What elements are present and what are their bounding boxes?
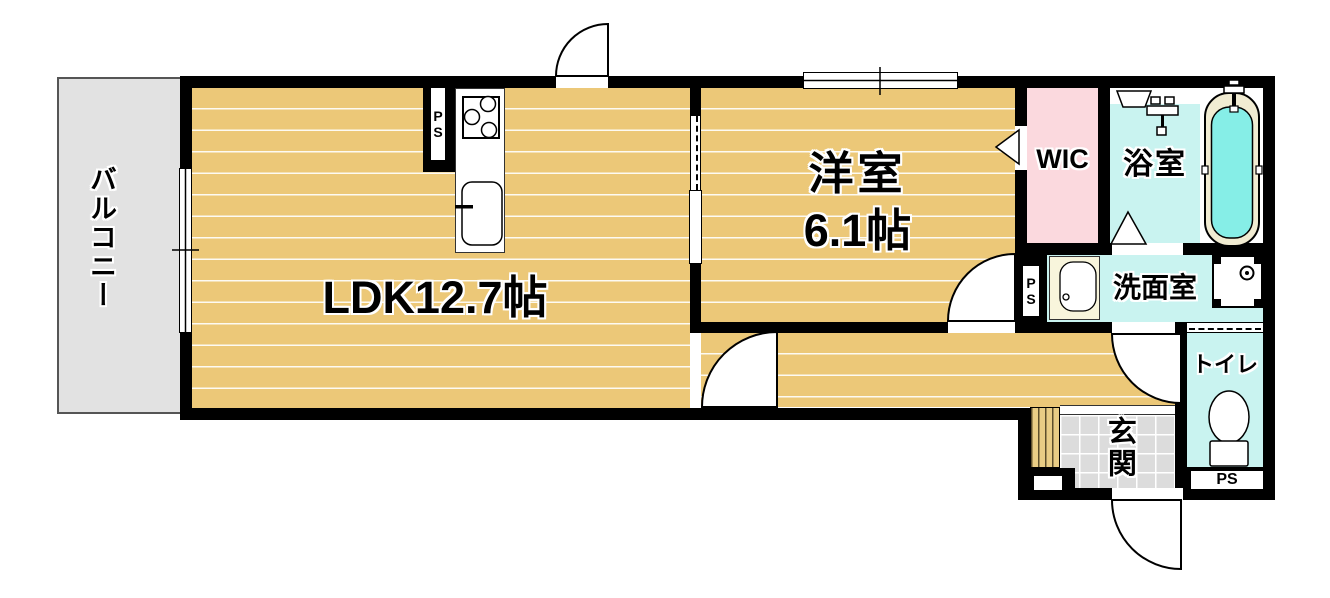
- western-room-size: 6.1帖: [765, 205, 950, 257]
- wall-bottom-ldk: [180, 408, 1030, 420]
- gas-stove-icon: [462, 96, 500, 139]
- pipe-space-kitchen-label: PS: [430, 108, 446, 140]
- pipe-space-kitchen: PS: [431, 88, 445, 160]
- floor-plan: PS PS PS: [0, 0, 1330, 598]
- doorway-entrance: [1112, 488, 1183, 500]
- pipe-space-wic: PS: [1023, 266, 1039, 316]
- doorway-bathroom: [1112, 243, 1183, 255]
- toilet-opening-dashed: [1187, 323, 1263, 332]
- wall-right: [1263, 76, 1275, 500]
- bathroom-label: 浴室: [1108, 148, 1202, 183]
- hallway: [701, 333, 1175, 407]
- wic-label: WIC: [1027, 144, 1098, 175]
- entrance-label: 玄関: [1102, 416, 1135, 480]
- doorway-washroom: [1112, 322, 1175, 333]
- ldk-label: LDK12.7帖: [255, 272, 615, 324]
- entrance-step: [1030, 407, 1060, 468]
- wall-niche: [1034, 476, 1062, 490]
- pipe-space-toilet: PS: [1191, 471, 1263, 489]
- doorway-top: [556, 74, 608, 88]
- window-western-top: [803, 72, 958, 89]
- balcony-label: バルコニー: [85, 165, 116, 310]
- doorway-wic: [1015, 126, 1027, 170]
- entrance-threshold: [1060, 405, 1175, 415]
- pipe-space-wic-label: PS: [1023, 275, 1039, 307]
- toilet-label: トイレ: [1188, 352, 1262, 377]
- washroom-label: 洗面室: [1090, 272, 1220, 304]
- doorway-western: [948, 322, 1015, 333]
- wall-entrance-left: [1018, 408, 1030, 500]
- door-swing-entrance: [1112, 500, 1181, 569]
- pipe-space-toilet-label: PS: [1216, 471, 1237, 489]
- sliding-door-pocket: [691, 116, 700, 190]
- wall-toilet-left: [1175, 333, 1187, 467]
- wall-top: [180, 76, 1275, 88]
- door-swing-top: [556, 24, 608, 76]
- room-balcony: [57, 77, 194, 414]
- window-balcony: [179, 168, 192, 333]
- western-room-label: 洋室: [765, 148, 950, 200]
- sliding-door-leaf: [689, 190, 702, 264]
